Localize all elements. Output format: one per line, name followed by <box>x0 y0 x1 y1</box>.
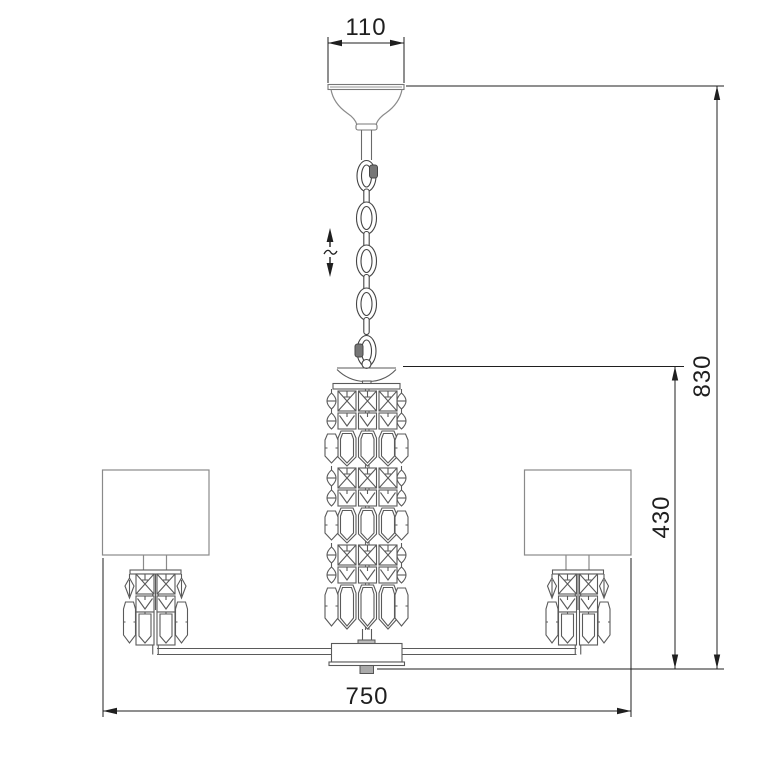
center-hub-assembly <box>157 629 577 674</box>
arm-right <box>402 649 577 655</box>
arrow-up-icon <box>672 367 678 381</box>
crystal-column <box>325 384 408 631</box>
dim-overall-width-label: 750 <box>345 683 388 710</box>
arrow-right-icon <box>617 708 631 714</box>
top-saucer <box>337 368 396 384</box>
crystal-cluster-right <box>546 570 610 655</box>
dim-canopy-width: 110 <box>328 14 404 83</box>
arrow-right-icon <box>390 40 404 46</box>
arm-left <box>157 649 332 655</box>
lamp-right <box>525 470 632 655</box>
quick-link-sleeve <box>355 344 363 357</box>
ceiling-canopy <box>328 85 404 161</box>
dim-canopy-width-label: 110 <box>345 14 386 41</box>
dim-body-height: 430 <box>403 367 684 669</box>
crystal-cluster-left <box>124 570 188 655</box>
technical-drawing-page: 110 <box>0 0 778 779</box>
quick-link-sleeve <box>370 165 378 178</box>
height-adjust-arrow-icon <box>324 228 337 277</box>
arrow-down-icon <box>714 655 720 669</box>
chandelier-technical-drawing: 110 <box>0 0 778 779</box>
suspension-chain <box>355 161 378 369</box>
arrow-up-icon <box>714 86 720 100</box>
arrow-left-icon <box>103 708 117 714</box>
bottom-finial <box>360 666 374 674</box>
dim-body-height-label: 430 <box>648 495 675 538</box>
arrow-down-icon <box>672 655 678 669</box>
lamp-left <box>103 470 210 655</box>
dim-overall-height-label: 830 <box>689 354 716 397</box>
lamp-shade-left <box>103 470 210 555</box>
lamp-shade-right <box>525 470 632 555</box>
tilde-glyph <box>324 250 337 254</box>
arrow-left-icon <box>328 40 342 46</box>
